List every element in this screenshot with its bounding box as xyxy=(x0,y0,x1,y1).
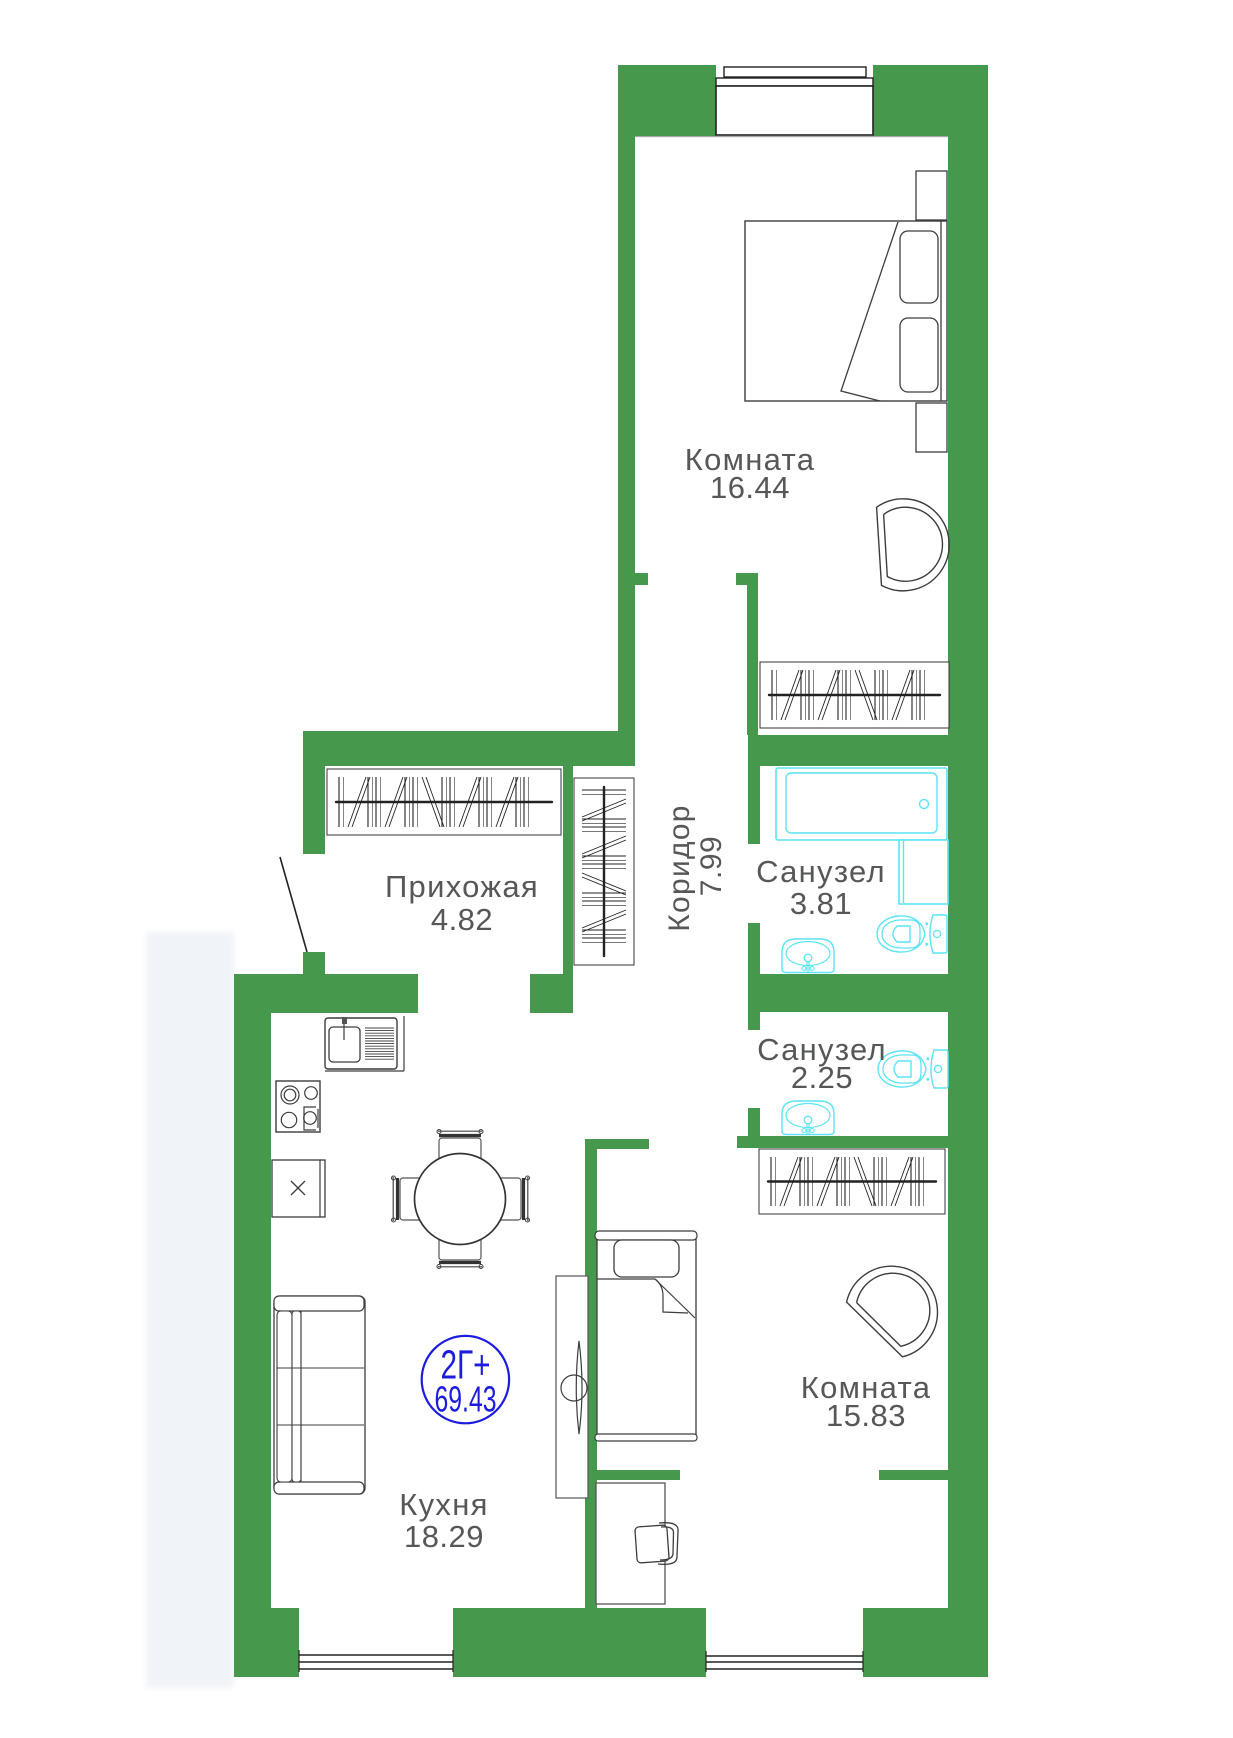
svg-text:7.99: 7.99 xyxy=(695,836,728,896)
svg-text:3.81: 3.81 xyxy=(790,886,852,921)
svg-text:18.29: 18.29 xyxy=(404,1519,484,1554)
svg-text:15.83: 15.83 xyxy=(826,1398,906,1433)
svg-text:Кухня: Кухня xyxy=(399,1487,488,1522)
svg-text:Коридор: Коридор xyxy=(663,804,696,932)
svg-text:2.25: 2.25 xyxy=(791,1060,853,1095)
svg-text:Санузел: Санузел xyxy=(756,854,886,889)
svg-text:16.44: 16.44 xyxy=(710,470,790,505)
svg-text:Прихожая: Прихожая xyxy=(385,869,539,904)
svg-text:69.43: 69.43 xyxy=(435,1379,497,1420)
svg-text:4.82: 4.82 xyxy=(431,902,493,937)
